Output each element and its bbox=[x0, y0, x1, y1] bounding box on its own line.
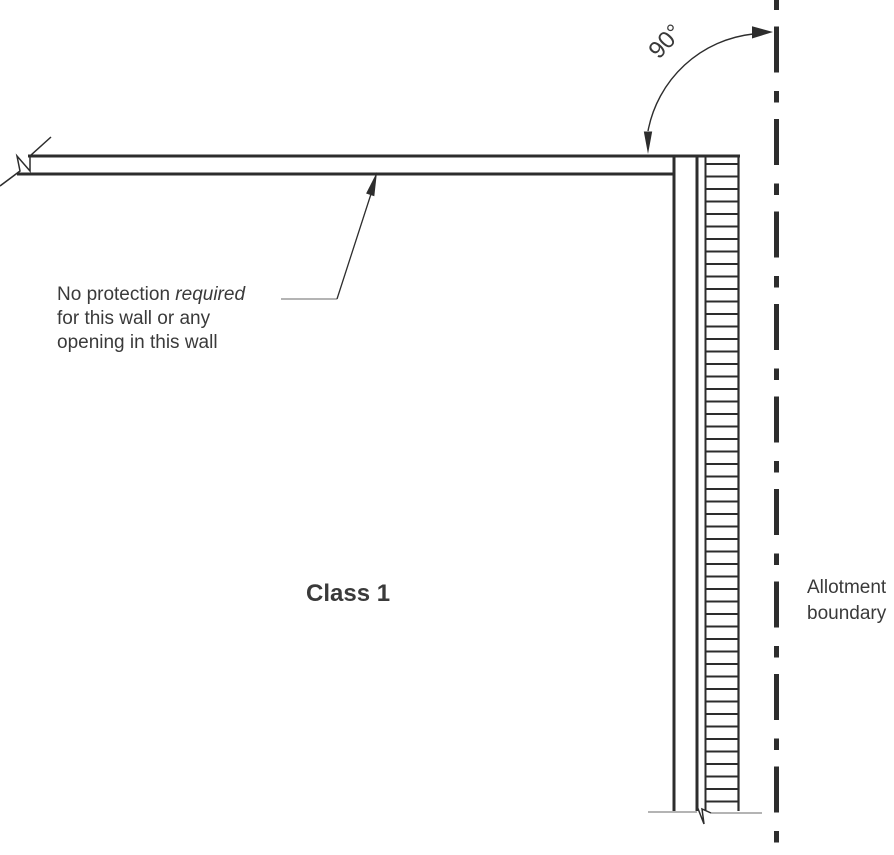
note-italic-word: required bbox=[175, 284, 245, 305]
allotment-boundary-label: Allotment boundary bbox=[807, 575, 886, 627]
diagram-linework bbox=[0, 0, 894, 855]
angle-arc-arrow-down-icon bbox=[644, 132, 652, 155]
wall-break-mark-bottom-icon bbox=[697, 806, 711, 824]
note-line-2: for this wall or any bbox=[57, 307, 245, 331]
wall-break-mark-top-left-icon bbox=[0, 137, 51, 186]
no-protection-note: No protection required for this wall or … bbox=[57, 283, 245, 355]
note-line-1: No protection required bbox=[57, 283, 245, 307]
note-leader-diagonal-line bbox=[337, 194, 371, 299]
class-1-label: Class 1 bbox=[306, 580, 390, 607]
angle-arc-arrow-right-icon bbox=[752, 26, 773, 38]
boundary-label-line-1: Allotment bbox=[807, 575, 886, 601]
note-line-3: opening in this wall bbox=[57, 331, 245, 355]
note-leader-arrow-icon bbox=[366, 172, 377, 196]
boundary-label-line-2: boundary bbox=[807, 601, 886, 627]
diagram-canvas: No protection required for this wall or … bbox=[0, 0, 894, 855]
